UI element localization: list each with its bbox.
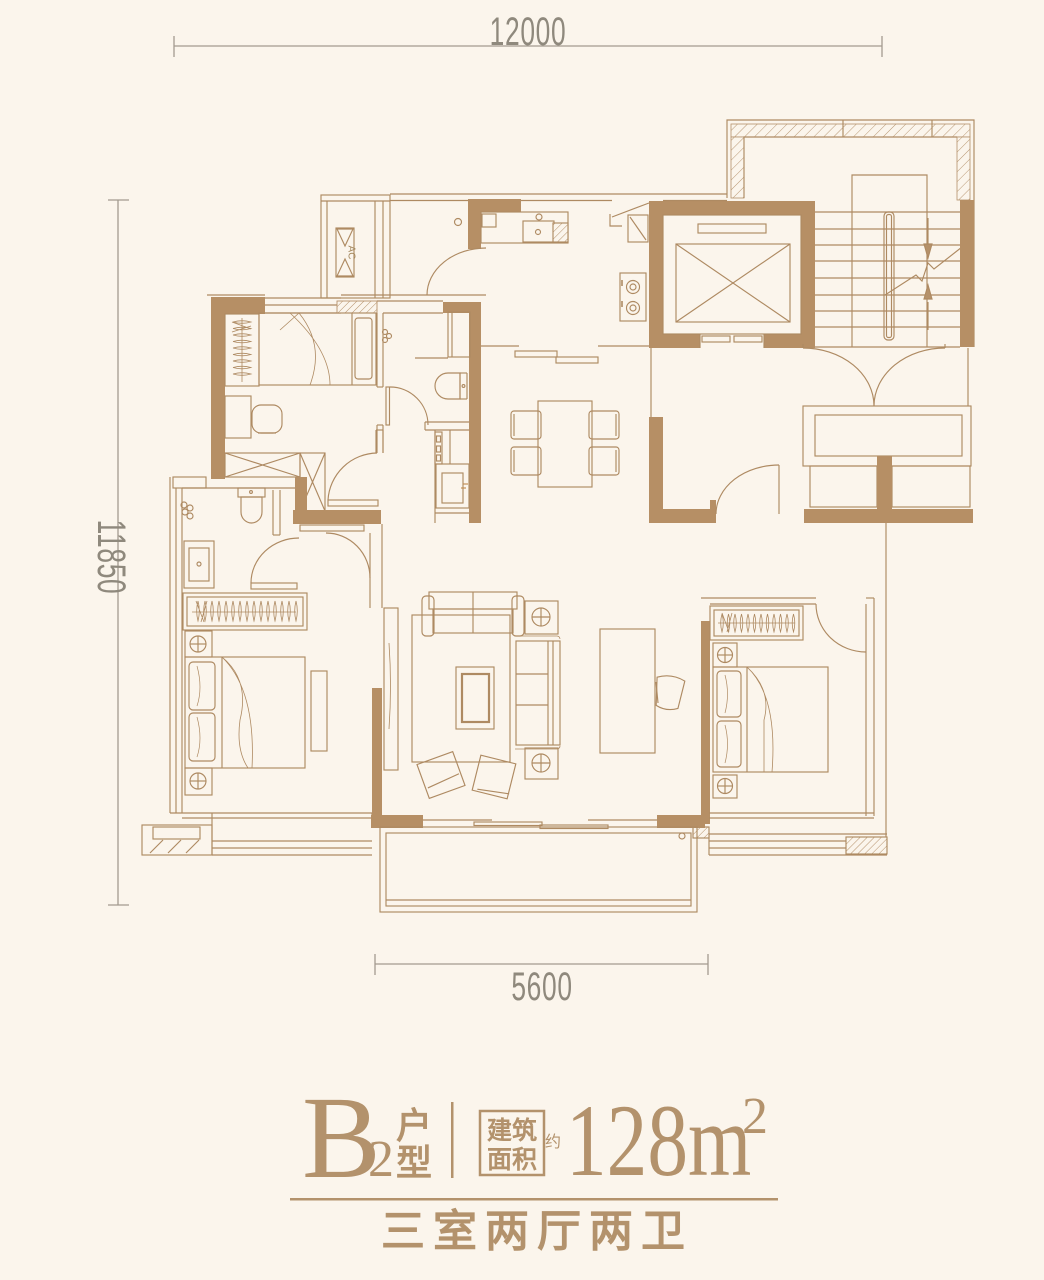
svg-text:建筑: 建筑 bbox=[487, 1116, 537, 1145]
svg-text:约: 约 bbox=[545, 1133, 561, 1151]
svg-text:2: 2 bbox=[368, 1131, 394, 1188]
svg-text:三室两厅两卫: 三室两厅两卫 bbox=[381, 1206, 693, 1256]
svg-text:2: 2 bbox=[742, 1088, 768, 1145]
svg-text:面积: 面积 bbox=[487, 1146, 537, 1174]
svg-text:户: 户 bbox=[396, 1105, 432, 1146]
svg-text:型: 型 bbox=[396, 1142, 432, 1183]
svg-text:12000: 12000 bbox=[490, 10, 567, 55]
svg-text:5600: 5600 bbox=[511, 965, 572, 1010]
svg-text:AC: AC bbox=[346, 246, 357, 260]
svg-text:11850: 11850 bbox=[89, 520, 134, 595]
svg-text:128m: 128m bbox=[566, 1084, 751, 1198]
